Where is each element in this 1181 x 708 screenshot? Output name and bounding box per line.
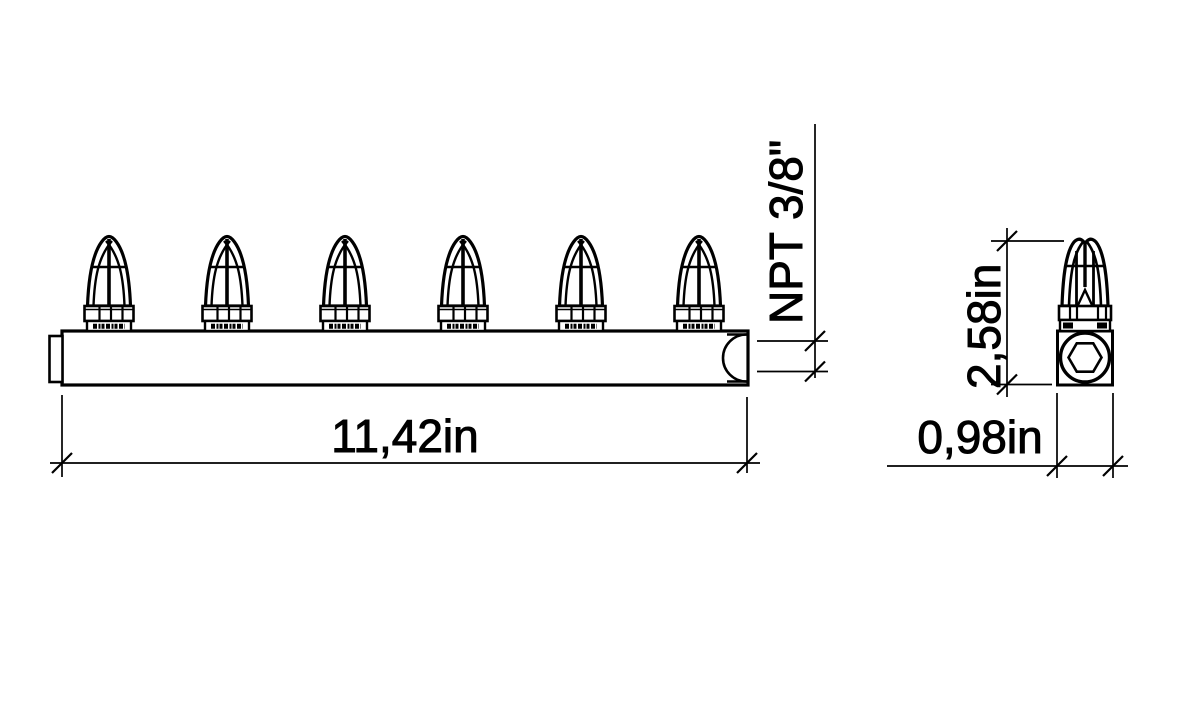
technical-drawing-canvas: 11,42in NPT 3/8" 2,58in 0,98i [0,0,1181,708]
manifold-technical-drawing: 11,42in NPT 3/8" 2,58in 0,98i [0,0,1181,708]
dimension-port-thread: NPT 3/8" [757,124,828,382]
body-width-label: 0,98in [917,411,1042,463]
nozzle [1059,239,1111,331]
nozzle [675,237,724,332]
nozzle [321,237,370,332]
dimension-body-width: 0,98in [887,393,1128,478]
nozzle [557,237,606,332]
side-view [1058,239,1113,385]
overall-height-label: 2,58in [958,264,1010,389]
hex-socket-icon [1069,343,1102,371]
dimension-overall-height: 2,58in [958,228,1064,397]
port-thread-label: NPT 3/8" [760,140,812,324]
front-view [50,237,749,386]
dimension-overall-length: 11,42in [50,395,760,477]
manifold-end-cap [50,336,63,382]
drawing-root: 11,42in NPT 3/8" 2,58in 0,98i [50,124,1129,478]
manifold-body [62,331,748,385]
nozzle [439,237,488,332]
nozzle [203,237,252,332]
nozzle [85,237,134,332]
overall-length-label: 11,42in [331,410,479,462]
